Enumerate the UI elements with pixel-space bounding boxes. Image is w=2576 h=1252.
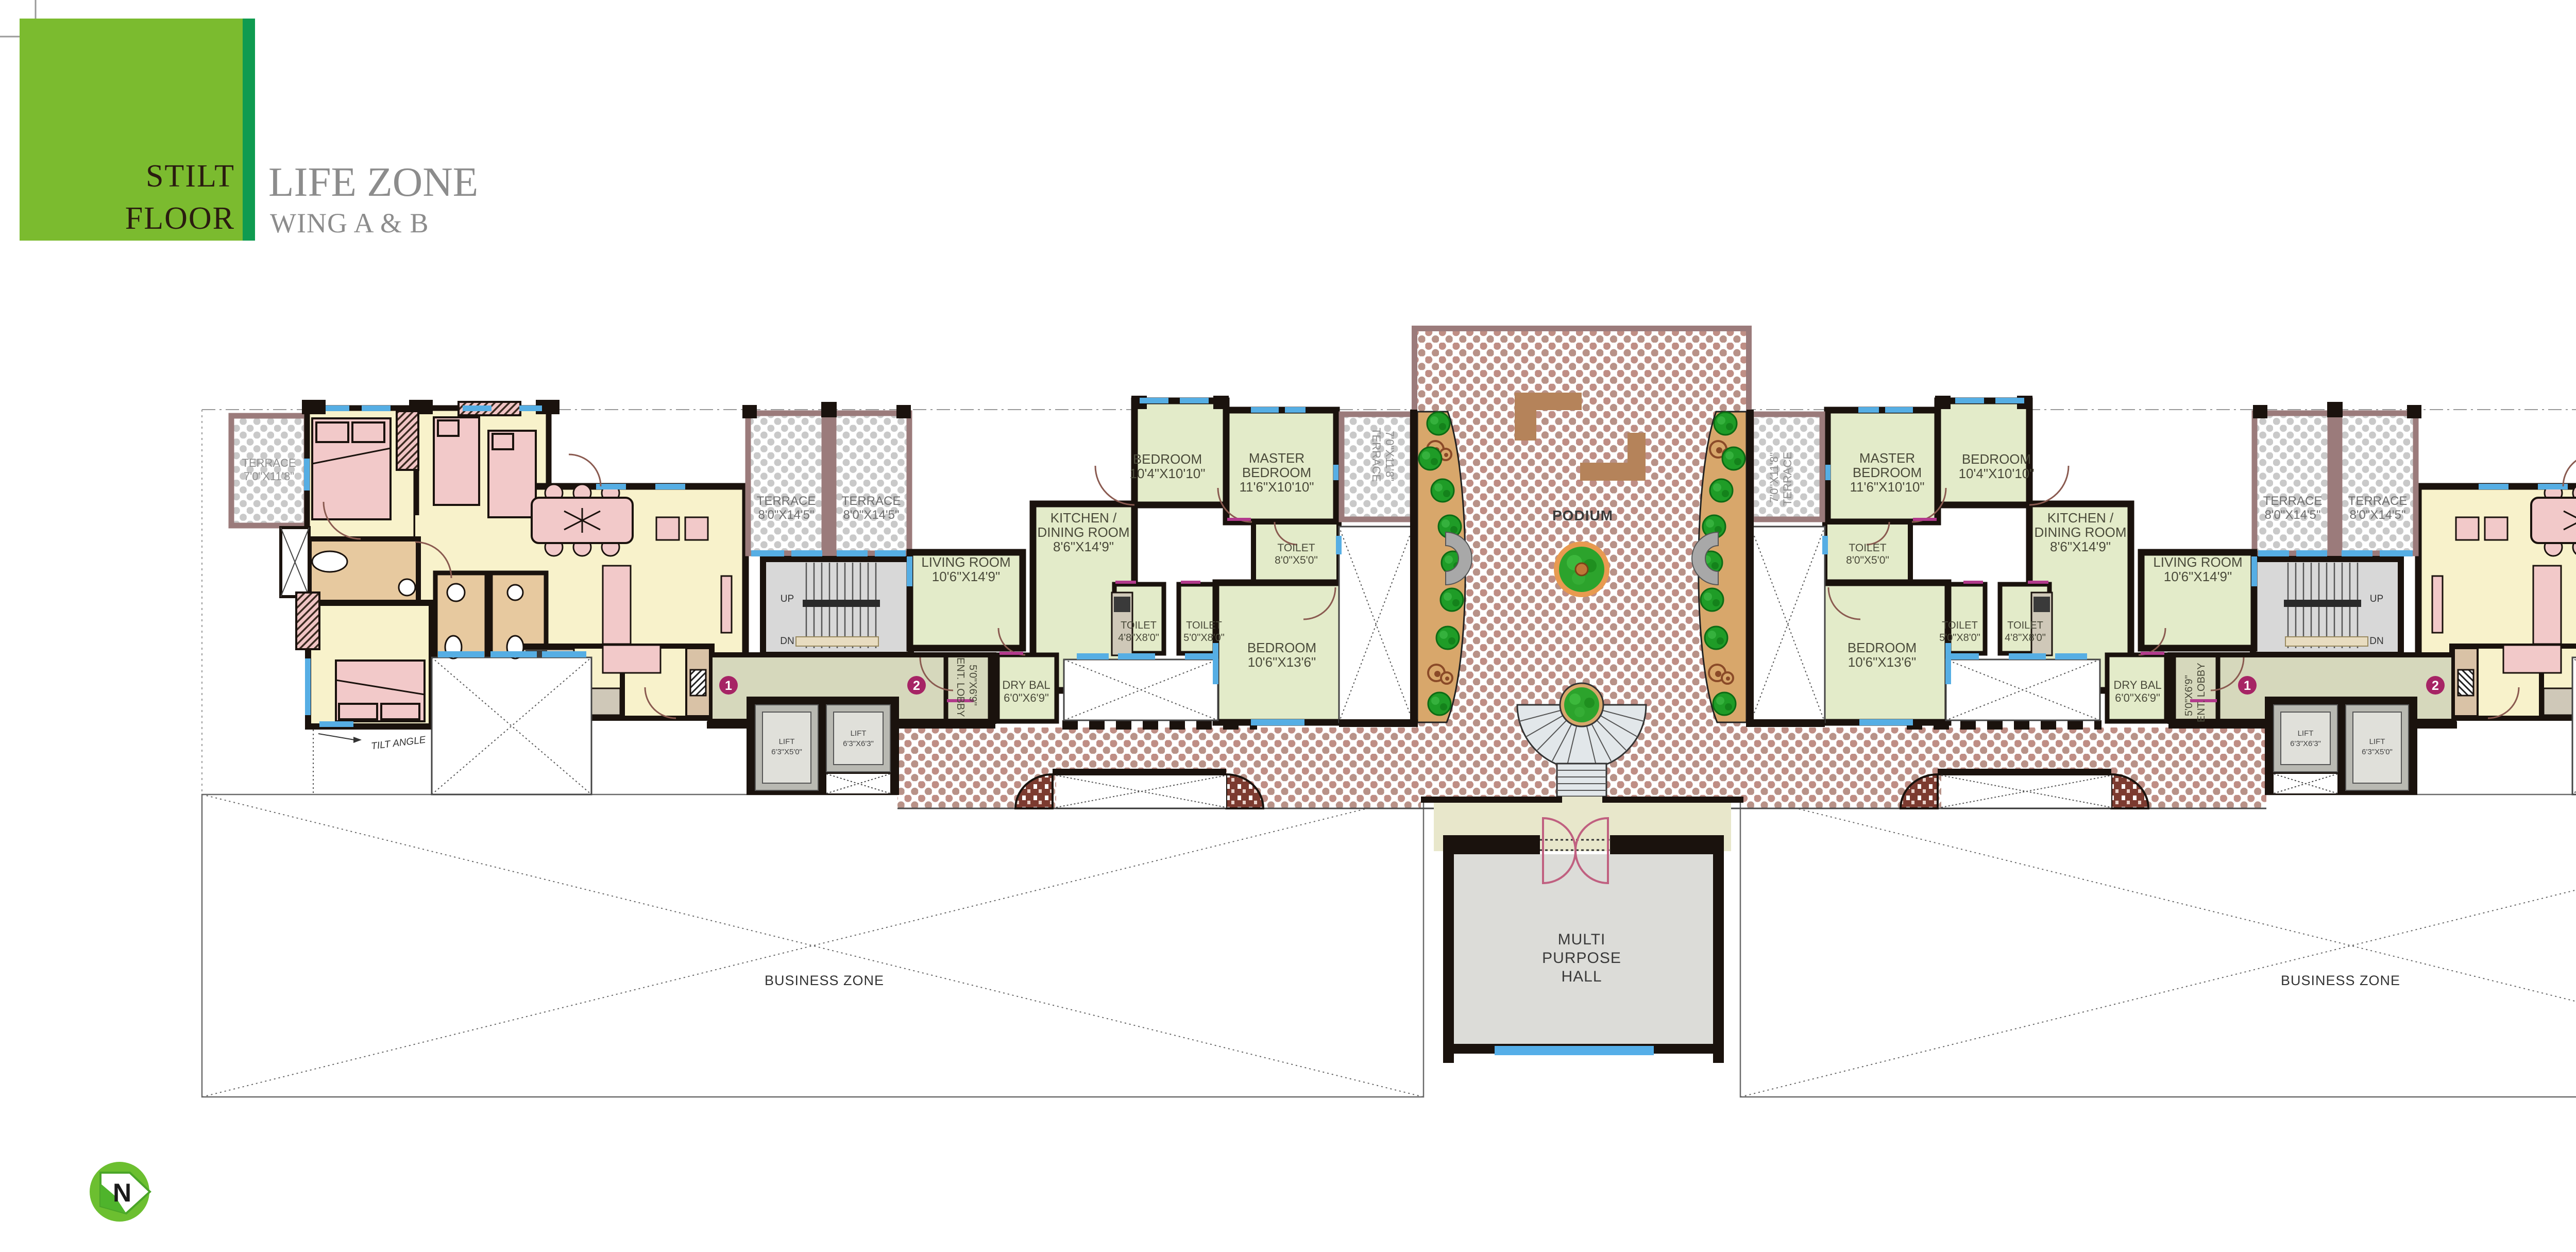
svg-text:TERRACE: TERRACE bbox=[1781, 452, 1794, 506]
svg-text:KITCHEN /: KITCHEN / bbox=[2047, 510, 2114, 526]
svg-text:DN: DN bbox=[780, 636, 794, 647]
svg-text:TOILET: TOILET bbox=[2007, 620, 2043, 631]
svg-text:DINING ROOM: DINING ROOM bbox=[2034, 525, 2126, 540]
svg-text:TOILET: TOILET bbox=[1186, 620, 1222, 631]
svg-text:LIVING ROOM: LIVING ROOM bbox=[2153, 554, 2242, 570]
svg-text:8'6"X14'9": 8'6"X14'9" bbox=[2050, 539, 2111, 554]
svg-text:4'8"X8'0": 4'8"X8'0" bbox=[2005, 632, 2046, 644]
svg-text:MASTER: MASTER bbox=[1249, 450, 1304, 466]
svg-text:BEDROOM: BEDROOM bbox=[1848, 640, 1917, 655]
svg-text:11'6"X10'10": 11'6"X10'10" bbox=[1850, 479, 1924, 495]
svg-text:UP: UP bbox=[2370, 594, 2383, 604]
svg-text:5'0"X6'9": 5'0"X6'9" bbox=[2183, 675, 2195, 716]
svg-text:LIVING ROOM: LIVING ROOM bbox=[921, 554, 1010, 570]
svg-text:2: 2 bbox=[2432, 679, 2439, 693]
svg-text:7'0"X11'8": 7'0"X11'8" bbox=[244, 470, 294, 483]
svg-text:TOILET: TOILET bbox=[1121, 620, 1157, 631]
svg-text:TERRACE: TERRACE bbox=[757, 494, 816, 508]
svg-text:MASTER: MASTER bbox=[1859, 450, 1915, 466]
svg-text:6'3"X6'3": 6'3"X6'3" bbox=[2290, 739, 2321, 748]
svg-text:TERRACE: TERRACE bbox=[2348, 494, 2408, 508]
svg-text:TOILET: TOILET bbox=[1942, 620, 1978, 631]
svg-text:HALL: HALL bbox=[1561, 968, 1602, 985]
svg-text:TERRACE: TERRACE bbox=[242, 456, 296, 469]
svg-text:LIFT: LIFT bbox=[2369, 737, 2385, 746]
svg-text:6'0"X6'9": 6'0"X6'9" bbox=[1004, 691, 1049, 704]
svg-text:PURPOSE: PURPOSE bbox=[1542, 950, 1621, 967]
svg-text:BEDROOM: BEDROOM bbox=[1133, 451, 1202, 467]
svg-text:6'3"X5'0": 6'3"X5'0" bbox=[771, 748, 802, 756]
svg-text:8'6"X14'9": 8'6"X14'9" bbox=[1053, 539, 1114, 554]
svg-text:6'3"X5'0": 6'3"X5'0" bbox=[2362, 748, 2393, 756]
svg-text:TERRACE: TERRACE bbox=[842, 494, 901, 508]
svg-text:DN: DN bbox=[2369, 636, 2383, 647]
svg-text:8'0"X14'5": 8'0"X14'5" bbox=[2265, 508, 2321, 522]
svg-text:5'0"X8'0": 5'0"X8'0" bbox=[1183, 632, 1225, 644]
svg-text:ENT. LOBBY: ENT. LOBBY bbox=[955, 657, 966, 717]
svg-text:LIFT: LIFT bbox=[851, 729, 867, 738]
svg-text:BEDROOM: BEDROOM bbox=[1962, 451, 2031, 467]
svg-text:5'0"X6'9": 5'0"X6'9" bbox=[967, 665, 978, 706]
svg-text:7'0"X11'8": 7'0"X11'8" bbox=[1768, 452, 1781, 503]
svg-text:TERRACE: TERRACE bbox=[1370, 428, 1383, 482]
svg-text:FLOOR: FLOOR bbox=[125, 201, 235, 236]
svg-text:KITCHEN /: KITCHEN / bbox=[1050, 510, 1117, 526]
svg-text:5'0"X8'0": 5'0"X8'0" bbox=[1939, 632, 1980, 644]
svg-text:BEDROOM: BEDROOM bbox=[1853, 465, 1922, 480]
svg-text:BEDROOM: BEDROOM bbox=[1247, 640, 1316, 655]
svg-text:10'4"X10'10": 10'4"X10'10" bbox=[1130, 466, 1206, 481]
svg-text:N: N bbox=[113, 1178, 131, 1207]
svg-text:6'3"X6'3": 6'3"X6'3" bbox=[843, 739, 874, 748]
svg-text:UP: UP bbox=[781, 594, 794, 604]
svg-text:2: 2 bbox=[913, 679, 920, 693]
svg-text:BEDROOM: BEDROOM bbox=[1242, 465, 1311, 480]
svg-text:1: 1 bbox=[725, 679, 732, 693]
svg-text:8'0"X5'0": 8'0"X5'0" bbox=[1846, 554, 1889, 566]
svg-text:DINING ROOM: DINING ROOM bbox=[1037, 525, 1129, 540]
svg-text:10'6"X14'9": 10'6"X14'9" bbox=[2164, 569, 2232, 584]
svg-text:10'4"X10'10": 10'4"X10'10" bbox=[1959, 466, 2035, 481]
svg-text:8'0"X5'0": 8'0"X5'0" bbox=[1275, 554, 1318, 566]
svg-text:DRY BAL: DRY BAL bbox=[2113, 679, 2161, 691]
svg-text:1: 1 bbox=[2244, 679, 2251, 693]
svg-text:LIFE ZONE: LIFE ZONE bbox=[268, 159, 478, 205]
svg-text:TERRACE: TERRACE bbox=[2263, 494, 2323, 508]
svg-text:DRY BAL: DRY BAL bbox=[1002, 679, 1050, 691]
svg-text:10'6"X14'9": 10'6"X14'9" bbox=[932, 569, 1001, 584]
svg-text:BUSINESS ZONE: BUSINESS ZONE bbox=[2281, 973, 2400, 988]
svg-text:4'8"X8'0": 4'8"X8'0" bbox=[1118, 632, 1159, 644]
svg-text:8'0"X14'5": 8'0"X14'5" bbox=[2350, 508, 2406, 522]
svg-text:6'0"X6'9": 6'0"X6'9" bbox=[2115, 691, 2160, 704]
svg-text:STILT: STILT bbox=[146, 159, 235, 194]
svg-text:MULTI: MULTI bbox=[1558, 931, 1606, 948]
svg-text:WING A & B: WING A & B bbox=[270, 208, 429, 239]
svg-text:TOILET: TOILET bbox=[1277, 542, 1315, 554]
svg-text:10'6"X13'6": 10'6"X13'6" bbox=[1248, 654, 1316, 670]
svg-text:LIFT: LIFT bbox=[779, 737, 795, 746]
svg-text:8'0"X14'5": 8'0"X14'5" bbox=[843, 508, 900, 522]
svg-text:10'6"X13'6": 10'6"X13'6" bbox=[1848, 654, 1917, 670]
svg-text:8'0"X14'5": 8'0"X14'5" bbox=[758, 508, 815, 522]
svg-text:7'0"X11'8": 7'0"X11'8" bbox=[1383, 431, 1396, 481]
svg-text:LIFT: LIFT bbox=[2298, 729, 2314, 738]
svg-text:PODIUM: PODIUM bbox=[1552, 507, 1613, 523]
svg-text:ENT. LOBBY: ENT. LOBBY bbox=[2196, 663, 2207, 722]
svg-text:BUSINESS ZONE: BUSINESS ZONE bbox=[765, 973, 884, 988]
svg-text:11'6"X10'10": 11'6"X10'10" bbox=[1239, 479, 1314, 495]
svg-text:TOILET: TOILET bbox=[1849, 542, 1886, 554]
